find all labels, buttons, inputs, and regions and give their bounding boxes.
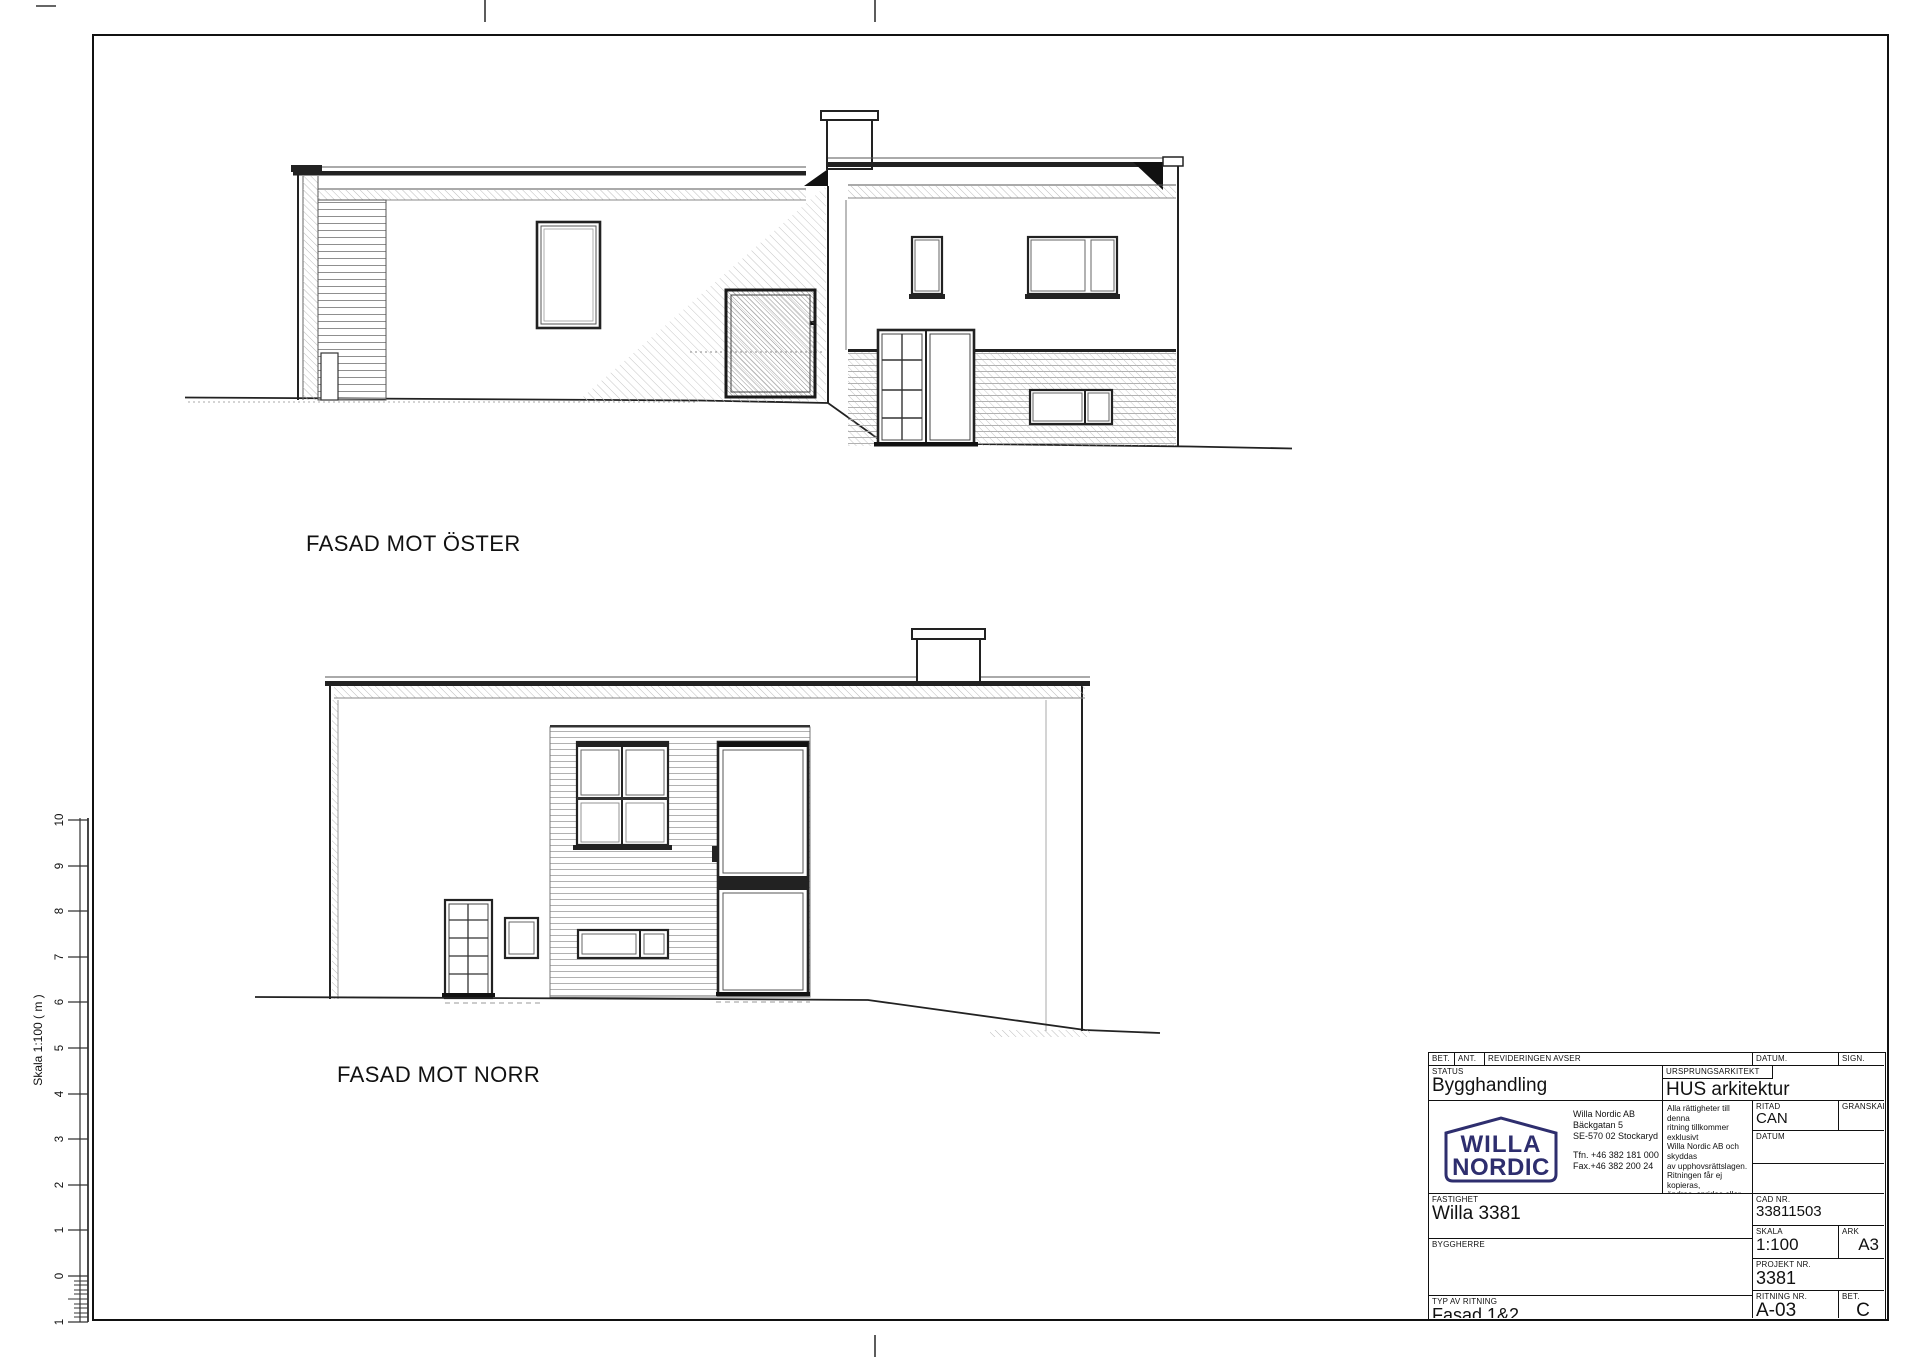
fastighet-cell: FASTIGHET Willa 3381: [1429, 1194, 1753, 1239]
datum-label: DATUM: [1753, 1131, 1884, 1141]
address-fax: Fax.+46 382 200 24: [1573, 1161, 1659, 1172]
ruler-tick-label: 1: [54, 1227, 66, 1233]
ritning-nr-cell: RITNING NR. A-03: [1753, 1291, 1839, 1318]
cad-nr-value: 33811503: [1753, 1204, 1884, 1220]
datum-cell: DATUM: [1753, 1131, 1884, 1164]
east-right-volume: [828, 157, 1183, 447]
skala-cell: SKALA 1:100: [1753, 1226, 1839, 1259]
status-cell: STATUS Bygghandling: [1429, 1066, 1663, 1101]
empty-cell: [1753, 1164, 1884, 1194]
revision-sign-cell: SIGN.: [1839, 1053, 1884, 1066]
east-facade: [185, 111, 1292, 449]
architect-cell: URSPRUNGSARKITEKT HUS arkitektur: [1663, 1066, 1884, 1101]
logo-address-cell: WILLA NORDIC Willa Nordic AB Bäckgatan 5…: [1429, 1101, 1663, 1194]
north-ground-line: [255, 997, 1160, 1033]
revision-avser-label: REVIDERINGEN AVSER: [1485, 1053, 1752, 1063]
revision-ant-label: ANT.: [1455, 1053, 1484, 1063]
ruler-tick-label: 5: [54, 1045, 66, 1051]
copyright-line: Alla rättigheter till denna: [1667, 1104, 1750, 1123]
address-line: SE-570 02 Stockaryd: [1573, 1131, 1659, 1142]
granskad-label: GRANSKAD: [1839, 1101, 1884, 1111]
copyright-line: ritning tillkommer exklusivt: [1667, 1123, 1750, 1142]
willa-nordic-logo: WILLA NORDIC: [1436, 1111, 1566, 1189]
ruler-tick-label: 8: [54, 908, 66, 914]
skala-value: 1:100: [1753, 1236, 1838, 1254]
copyright-line: Willa Nordic AB och skyddas: [1667, 1142, 1750, 1161]
north-door: [442, 900, 495, 998]
north-strip-window: [578, 930, 668, 958]
architect-value: HUS arkitektur: [1663, 1080, 1790, 1100]
ruler-subtick-label: 1: [54, 1319, 66, 1325]
byggherre-cell: BYGGHERRE: [1429, 1239, 1753, 1296]
east-corner-trim: [321, 353, 338, 400]
revision-avser-cell: REVIDERINGEN AVSER: [1485, 1053, 1753, 1066]
revision-datum-cell: DATUM.: [1753, 1053, 1839, 1066]
north-fascia-band: [334, 686, 1085, 698]
address-phone: Tfn. +46 382 181 000: [1573, 1150, 1659, 1161]
east-left-parapet-cap: [291, 165, 322, 172]
east-roof-wedge: [804, 169, 828, 186]
east-right-fascia-band: [848, 186, 1176, 198]
east-entrance-door: [874, 330, 978, 447]
revision-sign-label: SIGN.: [1839, 1053, 1884, 1063]
ruler-tick-label: 9: [54, 863, 66, 869]
ruler-tick-label: 4: [54, 1090, 66, 1097]
north-window-handle: [712, 846, 718, 862]
scale-ruler-numbers: 10 9 8 7 6 5 4 3 2 1 0 1 Skala 1:100 ( m…: [31, 814, 66, 1326]
north-chimney: [912, 629, 985, 682]
scale-ruler-caption: Skala 1:100 ( m ): [31, 994, 45, 1085]
fastighet-value: Willa 3381: [1429, 1204, 1752, 1224]
architect-label: URSPRUNGSARKITEKT: [1663, 1066, 1772, 1076]
east-window-wide: [1025, 237, 1120, 299]
north-window-pair: [573, 742, 672, 850]
company-address: Willa Nordic AB Bäckgatan 5 SE-570 02 St…: [1573, 1109, 1659, 1172]
ruler-tick-label: 2: [54, 1182, 66, 1188]
bet-cell: BET. C: [1839, 1291, 1884, 1318]
east-roof-triangle: [1133, 162, 1163, 190]
logo-text-nordic: NORDIC: [1452, 1154, 1550, 1181]
north-small-window: [505, 918, 538, 958]
east-facade-label: FASAD MOT ÖSTER: [306, 531, 521, 557]
projekt-nr-value: 3381: [1753, 1269, 1884, 1288]
typ-av-ritning-value: Fasad 1&2: [1429, 1306, 1752, 1318]
east-corner-strip: [303, 176, 318, 400]
north-facade: [255, 629, 1160, 1037]
title-block: BET. ANT. REVIDERINGEN AVSER DATUM. SIGN…: [1428, 1052, 1886, 1320]
ruler-tick-label: 6: [54, 999, 66, 1005]
scale-ruler-ticks: [68, 820, 88, 1322]
ruler-tick-label: 0: [54, 1273, 66, 1279]
east-right-roof: [828, 162, 1163, 167]
north-corner-strip: [332, 700, 338, 999]
revision-ant-cell: ANT.: [1455, 1053, 1485, 1066]
crop-marks: [36, 0, 875, 1357]
ruler-tick-label: 3: [54, 1136, 66, 1142]
ruler-tick-label: 7: [54, 954, 66, 960]
east-window-lower: [1030, 390, 1112, 424]
ark-value: A3: [1839, 1236, 1884, 1254]
granskad-cell: GRANSKAD: [1839, 1101, 1884, 1131]
ritad-value: CAN: [1753, 1111, 1838, 1127]
revision-bet-label: BET.: [1429, 1053, 1454, 1063]
ritad-column: RITAD CAN GRANSKAD DATUM: [1753, 1101, 1884, 1194]
scale-ruler: [68, 818, 88, 1322]
east-window-narrow: [909, 237, 945, 299]
typ-av-ritning-cell: TYP AV RITNING Fasad 1&2: [1429, 1296, 1753, 1318]
status-value: Bygghandling: [1429, 1076, 1662, 1096]
address-line: Bäckgatan 5: [1573, 1120, 1659, 1131]
byggherre-label: BYGGHERRE: [1429, 1239, 1752, 1249]
copyright-line: av upphovsrättslagen.: [1667, 1162, 1750, 1172]
ruler-tick-label: 10: [54, 814, 66, 827]
east-chimney: [821, 111, 878, 169]
revision-bet-cell: BET.: [1429, 1053, 1455, 1066]
north-facade-label: FASAD MOT NORR: [337, 1062, 540, 1088]
scale-ruler-subticks: [68, 1281, 88, 1317]
east-right-parapet-cap: [1163, 157, 1183, 166]
east-left-roof: [293, 171, 806, 176]
east-fascia-band: [318, 190, 806, 200]
bet-value: C: [1839, 1301, 1884, 1318]
drawing-sheet: 10 9 8 7 6 5 4 3 2 1 0 1 Skala 1:100 ( m…: [0, 0, 1920, 1357]
ritning-nr-value: A-03: [1753, 1301, 1838, 1318]
cad-nr-cell: CAD NR. 33811503: [1753, 1194, 1884, 1226]
north-foundation-dashes: [445, 1002, 810, 1003]
north-ground-hatch: [990, 1030, 1090, 1037]
projekt-nr-cell: PROJEKT NR. 3381: [1753, 1259, 1884, 1291]
north-tall-window: [712, 742, 810, 996]
copyright-line: Ritningen får ej kopieras,: [1667, 1171, 1750, 1190]
ark-cell: ARK A3: [1839, 1226, 1884, 1259]
revision-datum-label: DATUM.: [1753, 1053, 1838, 1063]
east-window-shaded: [726, 290, 815, 397]
copyright-cell: Alla rättigheter till denna ritning till…: [1663, 1101, 1753, 1194]
east-window-upper-left: [537, 222, 600, 328]
address-line: Willa Nordic AB: [1573, 1109, 1659, 1120]
ritad-cell: RITAD CAN: [1753, 1101, 1839, 1131]
